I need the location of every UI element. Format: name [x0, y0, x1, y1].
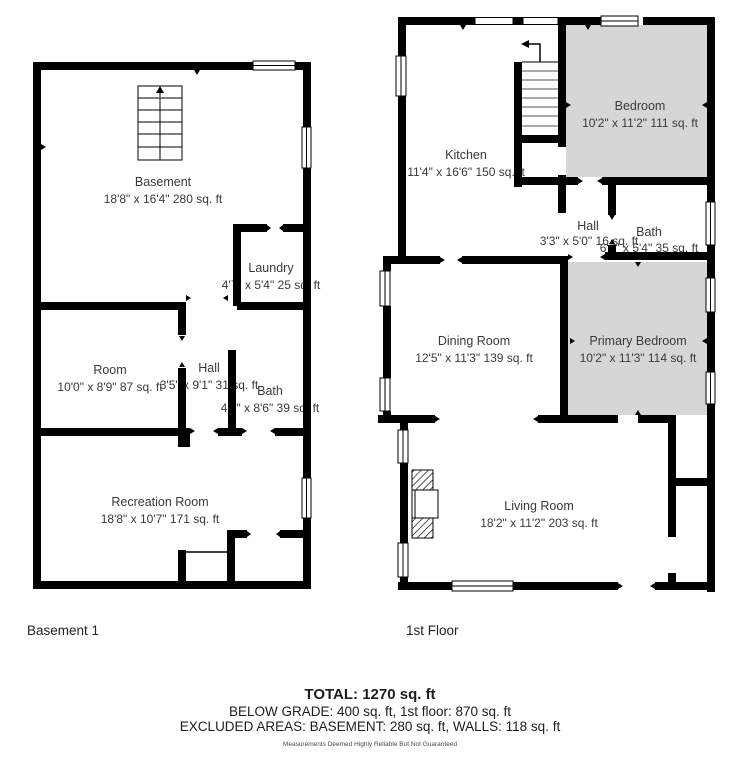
first-floor-plan-label: 1st Floor: [406, 623, 459, 638]
room-label-hall: Hall: [198, 361, 220, 375]
back-door-opening: [475, 18, 513, 25]
fireplace: [412, 470, 438, 538]
room-label-dining: Dining Room: [438, 334, 510, 348]
basement-plan-label: Basement 1: [27, 623, 99, 638]
room-dims-living: 18'2" x 11'2" 203 sq. ft: [480, 516, 598, 530]
room-dims-hall: 3'5" x 9'1" 31 sq. ft: [160, 378, 259, 392]
room-label-living: Living Room: [504, 499, 573, 513]
firebox: [415, 490, 438, 518]
floor-plan-canvas: Basement 18'8" x 16'4" 280 sq. ft Laundr…: [0, 0, 740, 768]
room-label-laundry: Laundry: [248, 261, 294, 275]
room-dims-recreation: 18'8" x 10'7" 171 sq. ft: [101, 512, 220, 526]
stairs-direction-arrow: [521, 40, 529, 48]
room-label-bedroom: Bedroom: [615, 99, 666, 113]
room-dims-dining: 12'5" x 11'3" 139 sq. ft: [415, 351, 533, 365]
room-label-primary: Primary Bedroom: [589, 334, 686, 348]
room-label-recreation: Recreation Room: [111, 495, 208, 509]
room-label-bath: Bath: [257, 384, 283, 398]
room-dims-room: 10'0" x 8'9" 87 sq. ft: [57, 380, 163, 394]
room-dims-basement: 18'8" x 16'4" 280 sq. ft: [104, 192, 223, 206]
first-floor-stairs: [521, 40, 558, 126]
room-dims-bedroom: 10'2" x 11'2" 111 sq. ft: [582, 116, 699, 130]
room-label-room: Room: [93, 363, 126, 377]
floor-plan-page: Basement 18'8" x 16'4" 280 sq. ft Laundr…: [0, 0, 740, 768]
basement-stairs: [138, 86, 182, 160]
summary-total: TOTAL: 1270 sq. ft: [0, 686, 740, 703]
summary-below-grade: BELOW GRADE: 400 sq. ft, 1st floor: 870 …: [0, 704, 740, 719]
summary-excluded-areas: EXCLUDED AREAS: BASEMENT: 280 sq. ft, WA…: [0, 719, 740, 734]
basement-plan: Basement 18'8" x 16'4" 280 sq. ft Laundr…: [33, 61, 321, 589]
room-label-basement: Basement: [135, 175, 192, 189]
room-dims-primary: 10'2" x 11'3" 114 sq. ft: [580, 351, 697, 365]
first-floor-plan: Kitchen 11'4" x 16'6" 150 sq. ft Bedroom…: [378, 16, 740, 592]
room-dims-kitchen: 11'4" x 16'6" 150 sq. ft: [407, 165, 525, 179]
room-label-kitchen: Kitchen: [445, 148, 487, 162]
room-label-hall1: Hall: [577, 219, 599, 233]
summary-disclaimer: Measurements Deemed Highly Reliable But …: [0, 741, 740, 748]
room-label-bath1: Bath: [636, 225, 662, 239]
stairwell-opening: [523, 18, 558, 25]
